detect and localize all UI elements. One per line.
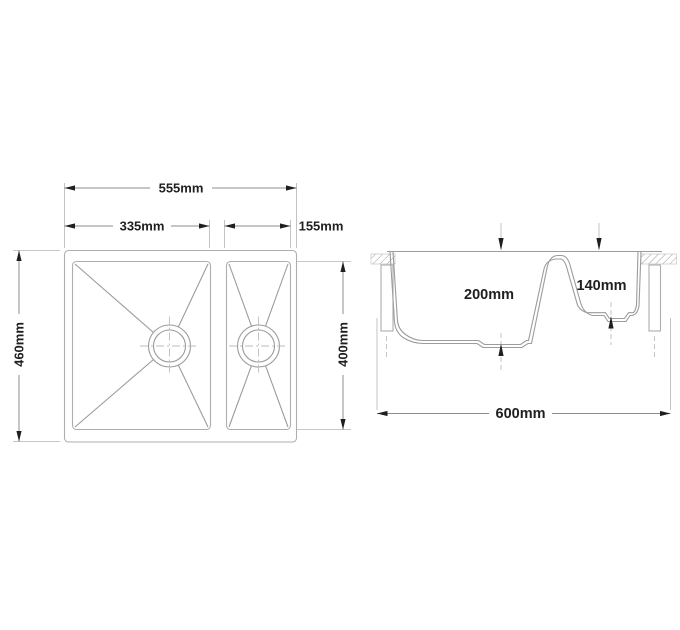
drain-marker-half (608, 302, 613, 345)
dim-overall-depth: 460mm (12, 251, 27, 442)
section-shell-outer (390, 252, 641, 348)
dim-label-335: 335mm (120, 219, 165, 234)
depth-leader-main (498, 223, 503, 251)
dim-label-200: 200mm (464, 287, 514, 303)
dim-main-bowl-width: 335mm (65, 219, 210, 234)
dim-cabinet-width: 600mm (377, 318, 671, 422)
dim-label-155: 155mm (299, 219, 344, 234)
depth-leader-half (596, 223, 601, 251)
dim-half-bowl-width: 155mm (225, 219, 344, 234)
dim-label-600: 600mm (496, 406, 546, 422)
worktop-section-left (371, 254, 395, 264)
section-shell-inner (393, 252, 638, 345)
worktop-section-right (641, 254, 677, 264)
main-bowl-drain (140, 317, 199, 376)
dim-label-555: 555mm (159, 181, 204, 196)
drain-marker-main (498, 333, 503, 371)
main-bowl-slope-lines (75, 264, 208, 427)
plan-main-bowl (73, 262, 211, 430)
dim-overall-width: 555mm (65, 181, 297, 196)
drawing-canvas: 555mm 335mm 155mm 460mm 400mm (0, 0, 680, 630)
dim-label-400: 400mm (336, 322, 351, 367)
section-view: 200mm 140mm 600mm (371, 223, 677, 422)
half-bowl-drain (229, 317, 288, 376)
plan-view: 555mm 335mm 155mm 460mm 400mm (12, 181, 352, 443)
cabinet-panel-right (649, 265, 661, 331)
sink-technical-drawing: 555mm 335mm 155mm 460mm 400mm (0, 0, 680, 630)
dim-bowl-length: 400mm (336, 262, 351, 430)
dim-label-140: 140mm (577, 278, 627, 294)
dim-label-460: 460mm (12, 322, 27, 367)
